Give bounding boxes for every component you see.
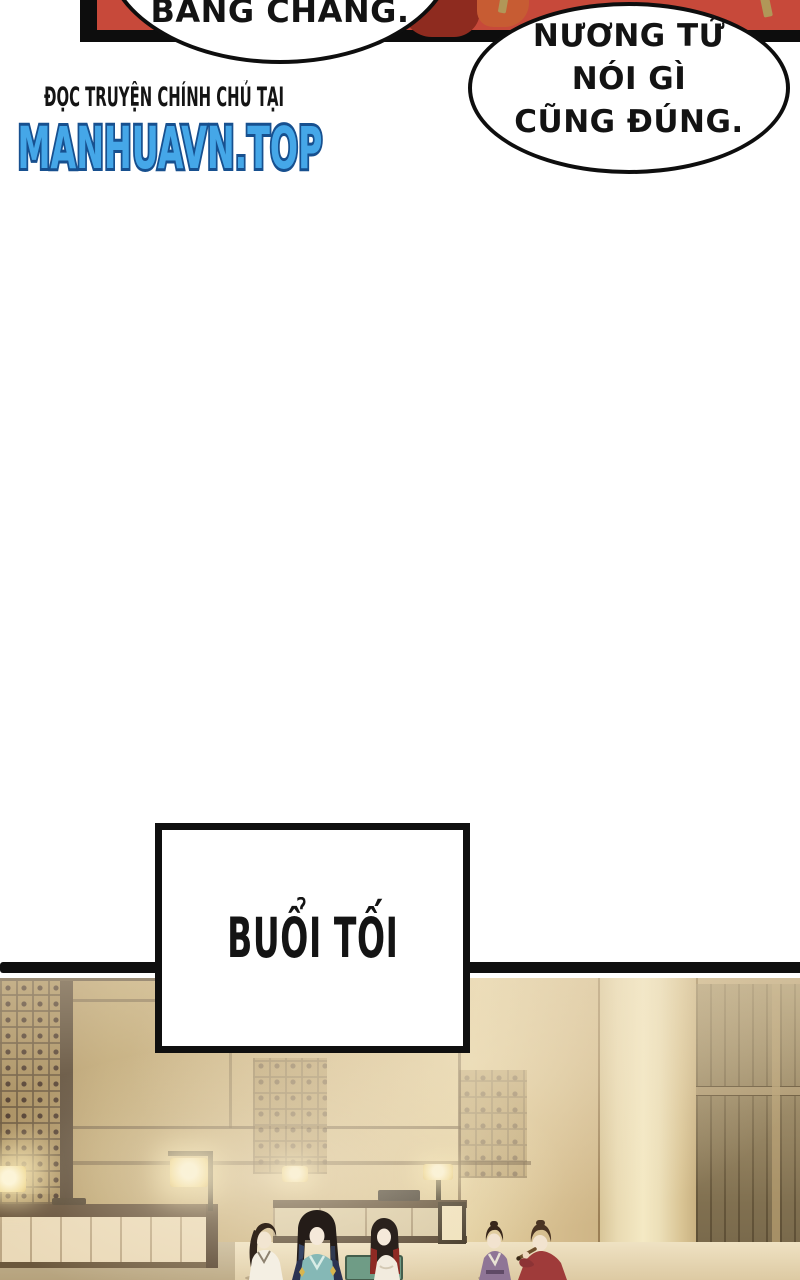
- character-ponytail: [249, 1223, 283, 1280]
- caption-box: BUỔI TỐI: [155, 823, 470, 1053]
- speech-text-left: BẰNG CHÀNG.: [150, 0, 409, 30]
- watermark-tagline: ĐỌC TRUYỆN CHÍNH CHỦ TẠI: [44, 80, 284, 113]
- face: [377, 1229, 391, 1246]
- manga-page: BẰNG CHÀNG. NƯƠNG TỬ NÓI GÌ CŨNG ĐÚNG. Đ…: [0, 0, 800, 1280]
- character-redtip-white: [370, 1218, 400, 1280]
- speech-text-line2: NÓI GÌ: [572, 58, 687, 101]
- character-purple-robe: [479, 1221, 511, 1280]
- character-longhair-teal: [292, 1210, 343, 1280]
- watermark-site: MANHUAVN.TOP: [18, 114, 323, 180]
- watermark: ĐỌC TRUYỆN CHÍNH CHỦ TẠI MANHUAVN.TOP: [0, 80, 340, 180]
- speech-text-line1: NƯƠNG TỬ: [533, 15, 725, 58]
- character-red-robe-pipe: [516, 1220, 567, 1280]
- pipe-bowl: [516, 1256, 520, 1260]
- sash: [486, 1270, 504, 1274]
- face: [310, 1227, 325, 1245]
- topknot: [490, 1221, 498, 1227]
- speech-bubble-right: NƯƠNG TỬ NÓI GÌ CŨNG ĐÚNG.: [468, 2, 790, 174]
- topknot: [536, 1220, 545, 1226]
- speech-text-line3: CŨNG ĐÚNG.: [514, 101, 743, 144]
- face: [487, 1234, 501, 1249]
- speech-bubble-left: BẰNG CHÀNG.: [105, 0, 455, 64]
- caption-text: BUỔI TỐI: [227, 906, 398, 970]
- hand: [523, 1252, 530, 1259]
